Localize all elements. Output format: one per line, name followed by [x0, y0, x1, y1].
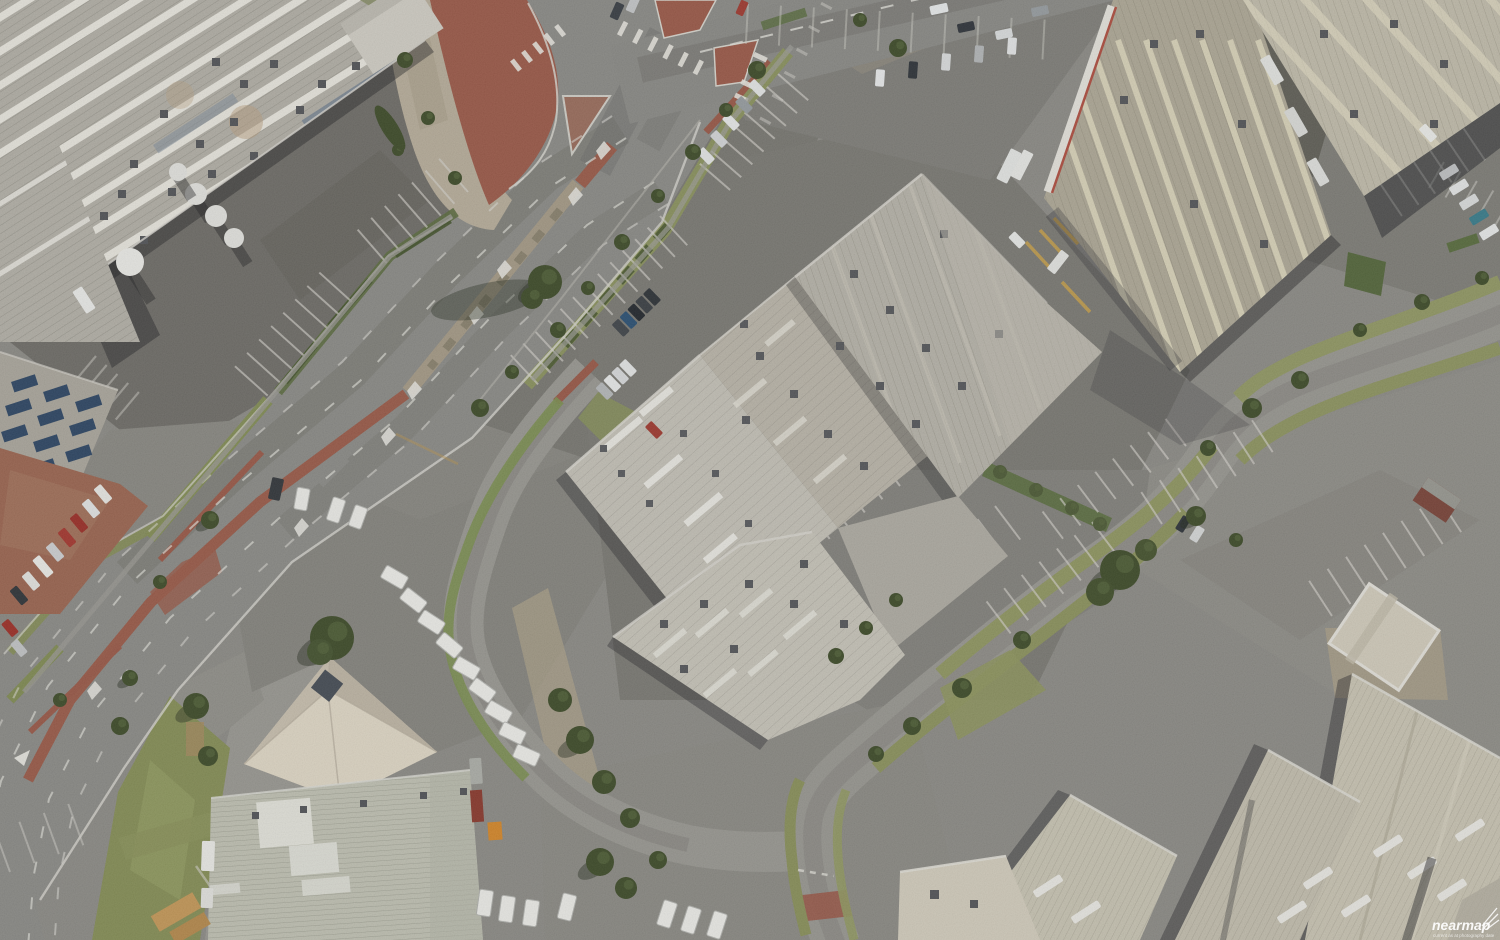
svg-text:nearmap: nearmap [1432, 917, 1491, 933]
svg-text:current as at photography date: current as at photography date [1433, 933, 1495, 938]
